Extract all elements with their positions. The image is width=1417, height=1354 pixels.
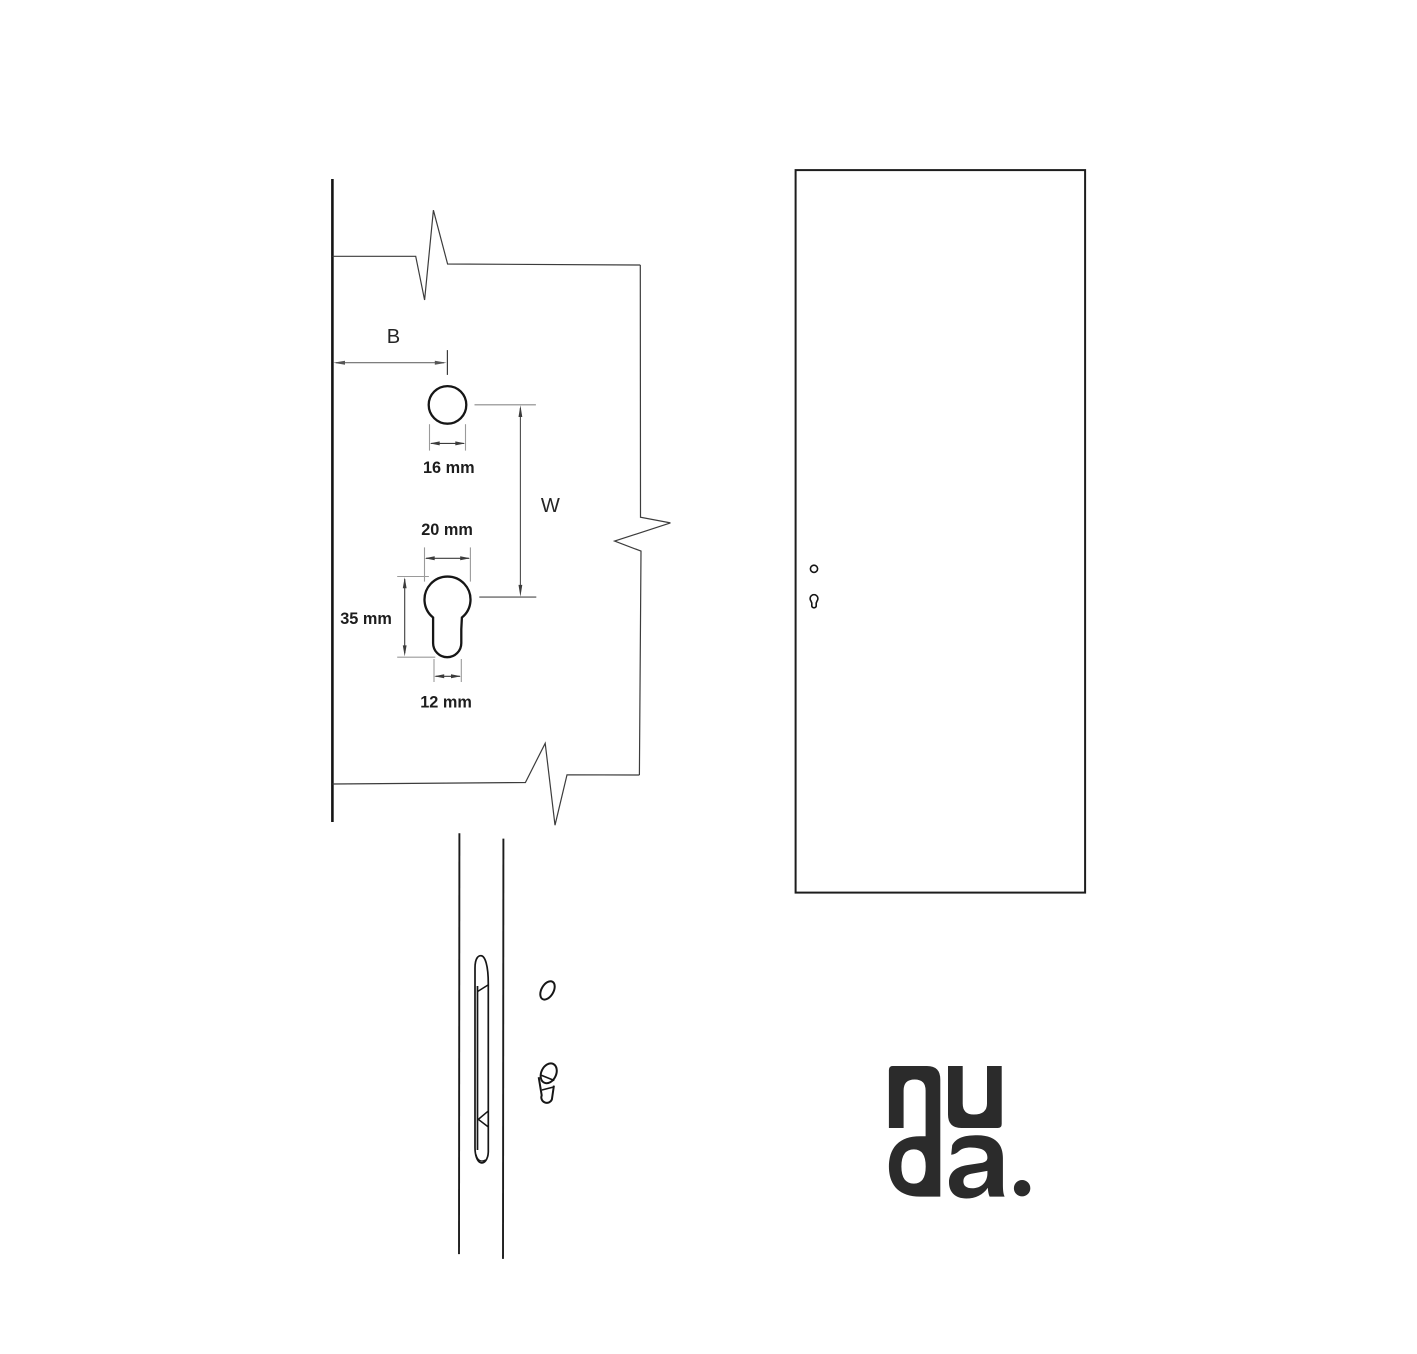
- svg-text:B: B: [387, 326, 400, 348]
- svg-text:35 mm: 35 mm: [340, 610, 392, 628]
- svg-text:20 mm: 20 mm: [421, 521, 473, 539]
- svg-text:16 mm: 16 mm: [423, 459, 475, 477]
- svg-text:12 mm: 12 mm: [420, 693, 472, 711]
- svg-text:W: W: [541, 495, 560, 517]
